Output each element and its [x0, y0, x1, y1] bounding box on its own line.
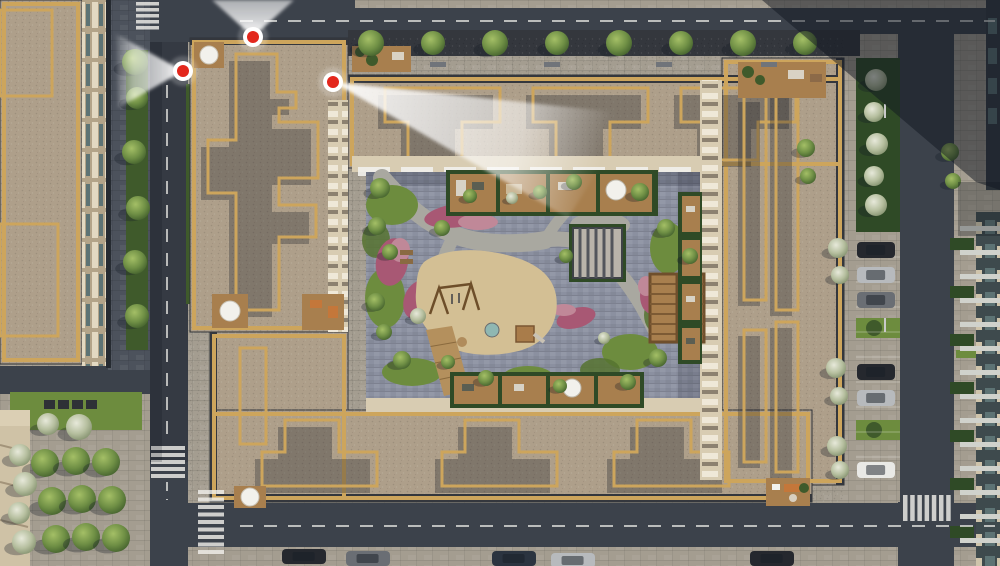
- terrace-plant: [799, 483, 809, 493]
- crosswalk-bottom-road: [198, 490, 224, 494]
- balcony-slab: [960, 418, 1000, 423]
- lowrise-roof-highlight: [0, 410, 30, 426]
- parked-car: [857, 242, 895, 258]
- aerial-render: [0, 0, 1000, 566]
- bench: [430, 62, 446, 67]
- bench: [544, 62, 560, 67]
- right-building-windows: [976, 212, 1000, 566]
- crosswalk-right-road: [910, 495, 915, 521]
- balcony-slab: [960, 490, 1000, 495]
- balcony-slab: [960, 370, 1000, 375]
- crosswalk-bottom-road: [198, 528, 224, 532]
- terrace-sofa: [310, 300, 322, 308]
- road-west: [0, 366, 152, 394]
- crosswalk-top-left: [136, 20, 159, 24]
- crosswalk-bottom-road: [198, 550, 224, 554]
- courtyard: [361, 170, 704, 408]
- street-car: [750, 551, 794, 566]
- crosswalk-left-road: [151, 467, 185, 471]
- parked-car: [857, 292, 895, 308]
- road-bottom: [185, 503, 1000, 547]
- terrace-furniture: [788, 70, 804, 79]
- crosswalk-top-left: [136, 2, 159, 6]
- building-shadow: [150, 42, 162, 462]
- pergola-grey: [569, 224, 626, 282]
- lamp-post: [884, 104, 886, 118]
- bench: [72, 400, 83, 409]
- patio-umbrella: [220, 301, 240, 321]
- marker-dot: [247, 31, 259, 43]
- street-car: [346, 551, 390, 566]
- marker-dot: [327, 76, 339, 88]
- crosswalk-left-road: [151, 474, 185, 478]
- crosswalk-bottom-road: [198, 543, 224, 547]
- left-building-wall-edge: [106, 0, 111, 368]
- crosswalk-top-left: [136, 8, 159, 12]
- crosswalk-bottom-road: [198, 498, 224, 502]
- bench: [86, 400, 97, 409]
- terrace-plant: [755, 75, 765, 85]
- bottom-wing-roof-blocks: [255, 420, 729, 493]
- terrace-sofa: [784, 484, 800, 492]
- left-building-roof-texture: [0, 0, 82, 364]
- lamp-post: [884, 318, 886, 332]
- patio-umbrella: [606, 180, 626, 200]
- balcony-slab: [960, 442, 1000, 447]
- building-shadow: [958, 182, 1000, 236]
- left-building-balconies: [82, 0, 108, 366]
- parked-car: [857, 462, 895, 478]
- bench: [58, 400, 69, 409]
- bench: [400, 259, 413, 264]
- bench: [400, 250, 413, 255]
- terrace-plant: [742, 66, 754, 78]
- balcony-slab: [960, 394, 1000, 399]
- facade-hedge: [950, 478, 974, 490]
- patio-umbrella: [200, 46, 218, 64]
- terrace-table: [462, 384, 474, 391]
- parked-car: [857, 390, 895, 406]
- balcony-slab: [960, 466, 1000, 471]
- facade-hedge: [950, 334, 974, 346]
- balcony-slab: [960, 514, 1000, 519]
- aerial-render-stage: [0, 0, 1000, 566]
- balcony-slab: [960, 322, 1000, 327]
- play-table: [457, 337, 467, 347]
- balcony-slab: [960, 298, 1000, 303]
- courtyard-terraces-right: [678, 192, 702, 364]
- crosswalk-right-road: [925, 495, 930, 521]
- terrace-furniture: [810, 74, 822, 82]
- facade-hedge: [950, 526, 974, 538]
- sand-play-dish: [485, 323, 499, 337]
- crosswalk-bottom-road: [198, 535, 224, 539]
- bench: [656, 62, 672, 67]
- crosswalk-bottom-road: [198, 505, 224, 509]
- playhouse: [516, 326, 534, 342]
- balcony-slab: [960, 538, 1000, 543]
- crosswalk-bottom-road: [198, 520, 224, 524]
- terrace-furniture: [392, 52, 404, 60]
- parked-car: [857, 267, 895, 283]
- parked-car: [857, 364, 895, 380]
- bench: [761, 62, 777, 67]
- balcony-slab: [960, 274, 1000, 279]
- parking-divider-bush: [866, 422, 882, 438]
- marker-dot: [177, 65, 189, 77]
- crosswalk-top-left: [136, 14, 159, 18]
- facade-hedge: [950, 238, 974, 250]
- crosswalk-right-road: [903, 495, 908, 521]
- street-car: [492, 551, 536, 566]
- patio-umbrella: [241, 488, 259, 506]
- balcony-slab: [960, 250, 1000, 255]
- crosswalk-right-road: [946, 495, 951, 521]
- balcony-slab: [960, 346, 1000, 351]
- crosswalk-right-road: [917, 495, 922, 521]
- facade-hedge: [950, 382, 974, 394]
- terrace-chair: [772, 484, 780, 490]
- facade-hedge: [950, 286, 974, 298]
- terrace-sofa: [328, 306, 338, 318]
- terrace-chair: [514, 384, 524, 391]
- terrace-table: [789, 494, 797, 502]
- crosswalk-right-road: [932, 495, 937, 521]
- terrace-table: [472, 182, 484, 190]
- street-car: [551, 553, 595, 566]
- bench: [44, 400, 55, 409]
- crosswalk-top-left: [136, 26, 159, 30]
- crosswalk-bottom-road: [198, 513, 224, 517]
- facade-hedge: [950, 430, 974, 442]
- street-car: [282, 549, 326, 564]
- crosswalk-right-road: [939, 495, 944, 521]
- parking-divider-bush: [866, 320, 882, 336]
